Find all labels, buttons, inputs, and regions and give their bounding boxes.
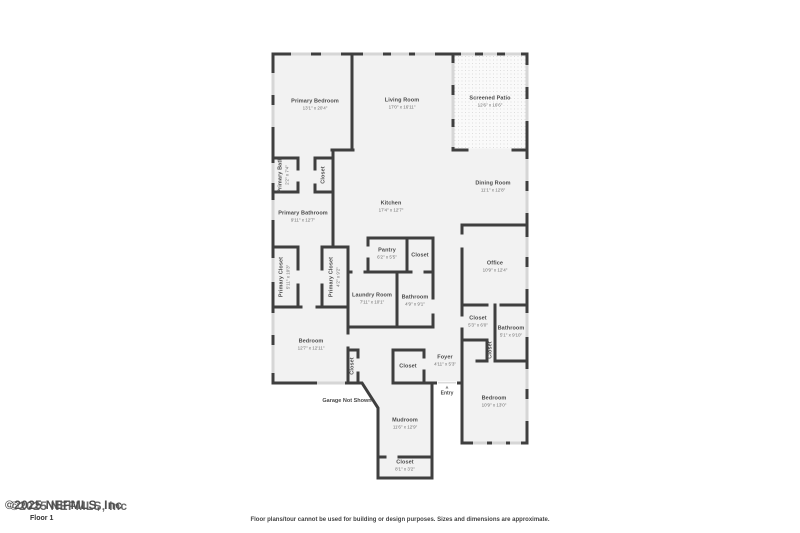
room-label-bathroom-1: Bathroom4'9" x 9'1" xyxy=(402,295,429,308)
entry-label: Entry xyxy=(441,390,454,397)
garage-note: Garage Not Shown xyxy=(322,398,371,404)
room-label-closet-pantry: Closet xyxy=(411,252,428,259)
room-label-mudroom: Mudroom11'6" x 12'9" xyxy=(392,418,418,431)
room-label-screened-patio: Screened Patio12'6" x 16'6" xyxy=(469,96,510,109)
room-label-primary-bathroom: Primary Bathroom9'11" x 12'7" xyxy=(278,211,328,224)
room-label-primary-bedroom: Primary Bedroom13'1" x 20'4" xyxy=(291,99,339,112)
room-label-kitchen: Kitchen17'4" x 12'7" xyxy=(379,201,404,214)
room-label-laundry-room: Laundry Room7'11" x 10'1" xyxy=(352,293,392,306)
room-label-primary-bath: Primary Bath2'2" x 7'4" xyxy=(278,157,291,192)
floor-plan-page: Primary Bedroom13'1" x 20'4" Living Room… xyxy=(0,0,800,533)
room-label-primary-closet-1: Primary Closet5'11" x 10'3" xyxy=(279,257,292,297)
room-label-dining-room: Dining Room11'1" x 12'8" xyxy=(475,181,510,194)
watermark: ©2025 NEFMLS, Inc ©2025 NEFMLS, Inc xyxy=(5,498,155,514)
room-label-closet-hall: Closet xyxy=(320,166,327,183)
room-label-living-room: Living Room17'0" x 16'11" xyxy=(385,98,419,111)
room-label-closet-right: Closet5'3" x 6'0" xyxy=(468,316,488,329)
room-label-bedroom-2: Bedroom10'9" x 13'0" xyxy=(482,396,507,409)
room-label-closet-mudroom: Closet8'1" x 3'2" xyxy=(395,460,415,473)
room-label-office: Office10'9" x 12'4" xyxy=(483,261,508,274)
room-label-closet-small: Closet xyxy=(487,341,494,358)
room-label-bathroom-2: Bathroom5'1" x 9'10" xyxy=(498,326,525,339)
disclaimer-text: Floor plans/tour cannot be used for buil… xyxy=(0,517,800,523)
room-label-primary-closet-2: Primary Closet4'2" x 9'2" xyxy=(329,257,342,297)
room-label-closet-hallway: Closet xyxy=(399,363,416,370)
room-label-pantry: Pantry6'2" x 5'5" xyxy=(377,248,397,261)
watermark-line-2: ©2025 NEFMLS, Inc xyxy=(10,499,127,513)
room-label-bedroom-1: Bedroom12'7" x 12'11" xyxy=(298,339,325,352)
entry-marker: ▲ Entry xyxy=(441,385,454,397)
room-label-closet-bedroom: Closet xyxy=(349,357,356,374)
room-label-foyer: Foyer4'11" x 5'3" xyxy=(434,355,456,368)
floor-plan: Primary Bedroom13'1" x 20'4" Living Room… xyxy=(265,45,535,485)
